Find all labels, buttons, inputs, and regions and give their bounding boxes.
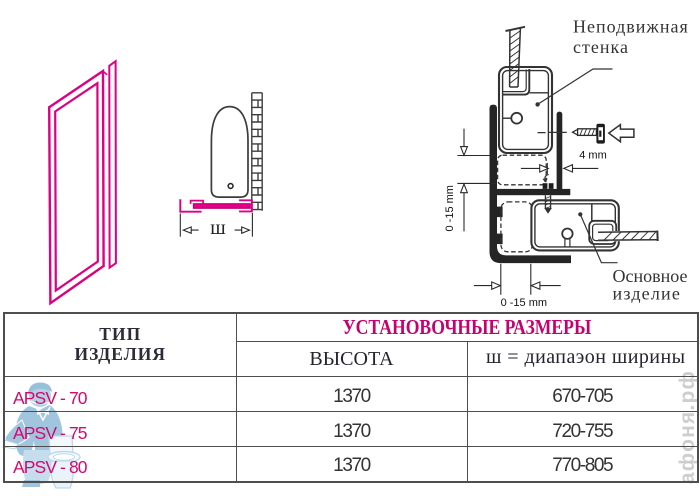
svg-text:стенка: стенка bbox=[573, 37, 629, 57]
svg-text:0 -15 mm: 0 -15 mm bbox=[501, 297, 547, 309]
svg-text:0 -15 mm: 0 -15 mm bbox=[444, 185, 456, 231]
svg-text:ш: ш bbox=[210, 217, 226, 239]
svg-text:4 mm: 4 mm bbox=[579, 150, 607, 162]
svg-text:изделие: изделие bbox=[613, 284, 682, 304]
svg-text:Неподвижная: Неподвижная bbox=[573, 17, 689, 37]
